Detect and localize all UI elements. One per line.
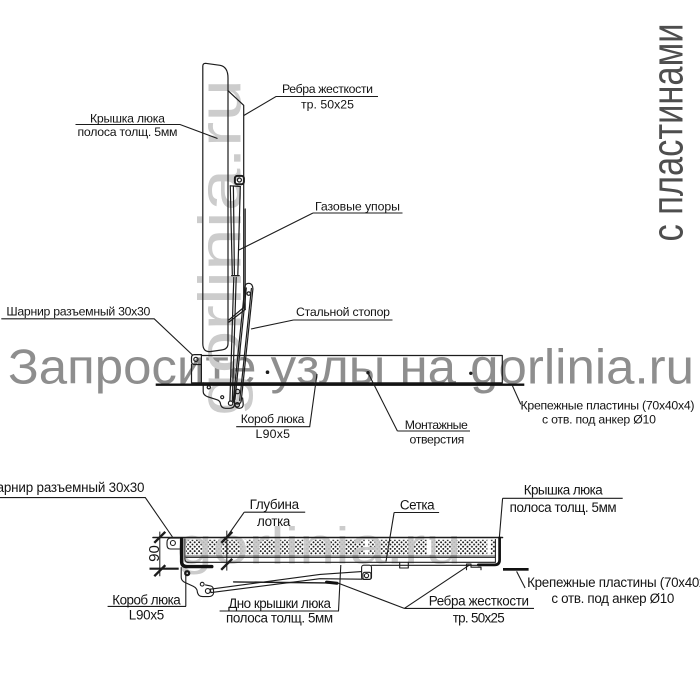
svg-text:Крышка люка: Крышка люка xyxy=(90,111,165,125)
svg-text:Дно крышки люка: Дно крышки люка xyxy=(228,596,331,611)
svg-text:полоса толщ. 5мм: полоса толщ. 5мм xyxy=(78,125,178,139)
svg-text:L90x5: L90x5 xyxy=(256,427,291,441)
svg-text:с отв. под анкер Ø10: с отв. под анкер Ø10 xyxy=(551,591,674,606)
svg-text:Ребра жесткости: Ребра жесткости xyxy=(429,593,529,608)
svg-text:Шарнир разъемный 30x30: Шарнир разъемный 30x30 xyxy=(0,480,145,495)
svg-text:Газовые упоры: Газовые упоры xyxy=(315,200,400,214)
svg-text:Стальной стопор: Стальной стопор xyxy=(296,305,390,319)
svg-text:тр. 50x25: тр. 50x25 xyxy=(453,610,505,625)
svg-text:полоса толщ. 5мм: полоса толщ. 5мм xyxy=(226,610,333,625)
svg-text:L90x5: L90x5 xyxy=(129,608,164,623)
svg-text:отверстия: отверстия xyxy=(410,432,465,446)
svg-text:Ребра жесткости: Ребра жесткости xyxy=(282,82,373,96)
svg-text:Короб люка: Короб люка xyxy=(241,412,305,426)
svg-text:Крышка люка: Крышка люка xyxy=(524,482,604,497)
svg-text:Сетка: Сетка xyxy=(400,498,435,513)
svg-text:Монтажные: Монтажные xyxy=(405,418,468,432)
svg-text:тр. 50x25: тр. 50x25 xyxy=(301,98,354,112)
svg-text:Глубина: Глубина xyxy=(250,497,300,512)
svg-text:Короб люка: Короб люка xyxy=(112,593,181,608)
svg-text:Шарнир разъемный 30x30: Шарнир разъемный 30x30 xyxy=(6,304,150,318)
svg-text:Крепежные пластины (70x40x4): Крепежные пластины (70x40x4) xyxy=(521,398,695,412)
svg-text:с пластинами: с пластинами xyxy=(644,24,693,242)
svg-text:с отв. под анкер Ø10: с отв. под анкер Ø10 xyxy=(542,412,656,426)
svg-text:полоса толщ. 5мм: полоса толщ. 5мм xyxy=(510,500,617,515)
svg-text:Запросите узлы на gorlinia.ru: Запросите узлы на gorlinia.ru xyxy=(8,340,694,395)
svg-text:gorlinia.ru: gorlinia.ru xyxy=(177,518,462,576)
svg-text:90: 90 xyxy=(146,545,163,562)
svg-text:лотка: лотка xyxy=(257,514,291,529)
svg-text:Крепежные пластины (70x40x4): Крепежные пластины (70x40x4) xyxy=(527,575,700,590)
